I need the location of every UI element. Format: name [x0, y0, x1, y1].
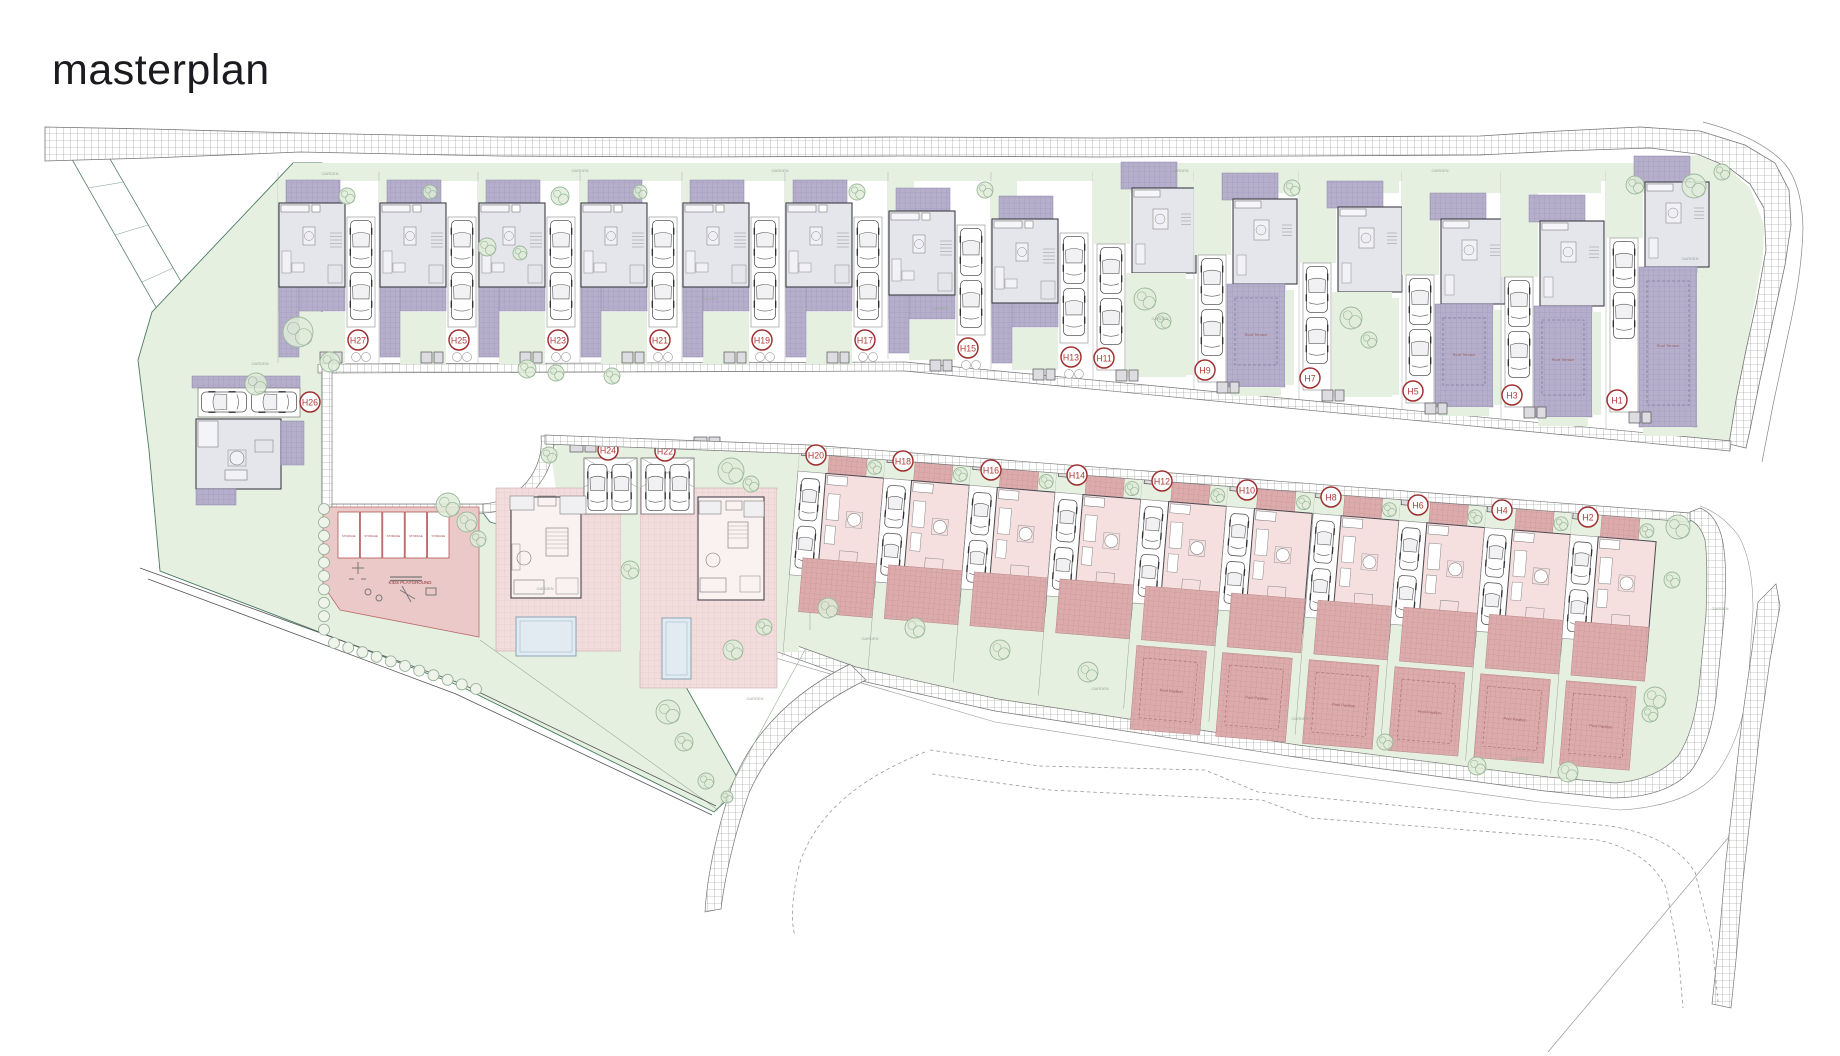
svg-text:GARDEN: GARDEN [1431, 168, 1448, 173]
svg-text:H15: H15 [960, 343, 976, 353]
svg-text:GARDEN: GARDEN [536, 586, 553, 591]
svg-text:H3: H3 [1506, 390, 1517, 400]
svg-text:GARDEN: GARDEN [861, 636, 878, 641]
svg-text:GARDEN: GARDEN [571, 168, 588, 173]
svg-text:GARDEN: GARDEN [1091, 686, 1108, 691]
svg-text:GARDEN: GARDEN [251, 361, 268, 366]
svg-text:H26: H26 [302, 397, 318, 407]
svg-text:H23: H23 [550, 335, 566, 345]
svg-text:H12: H12 [1154, 476, 1170, 486]
svg-text:H10: H10 [1239, 485, 1255, 495]
svg-text:H21: H21 [652, 335, 668, 345]
svg-text:Roof Terrace: Roof Terrace [1245, 332, 1269, 337]
svg-text:Roof Terrace: Roof Terrace [1453, 352, 1477, 357]
svg-text:H19: H19 [754, 335, 770, 345]
svg-text:H9: H9 [1199, 365, 1210, 375]
svg-text:STORAGE: STORAGE [409, 534, 423, 538]
svg-text:H16: H16 [983, 465, 999, 475]
svg-text:Roof Terrace: Roof Terrace [1552, 357, 1576, 362]
svg-text:H13: H13 [1063, 352, 1079, 362]
svg-text:H8: H8 [1325, 492, 1336, 502]
svg-text:H25: H25 [451, 335, 467, 345]
svg-text:GARDEN: GARDEN [1171, 168, 1188, 173]
svg-text:H4: H4 [1496, 505, 1507, 515]
svg-text:GARDEN: GARDEN [931, 306, 948, 311]
svg-text:Roof Terrace: Roof Terrace [1657, 343, 1681, 348]
svg-text:STORAGE: STORAGE [387, 534, 401, 538]
svg-text:STORAGE: STORAGE [431, 534, 445, 538]
svg-text:H17: H17 [857, 335, 873, 345]
svg-text:GARDEN: GARDEN [1681, 256, 1698, 261]
svg-text:H6: H6 [1412, 500, 1423, 510]
svg-text:GARDEN: GARDEN [321, 171, 338, 176]
svg-text:H20: H20 [808, 450, 824, 460]
svg-text:H2: H2 [1582, 512, 1593, 522]
svg-text:masterplan: masterplan [52, 46, 270, 94]
svg-text:H1: H1 [1611, 395, 1622, 405]
svg-text:H18: H18 [895, 456, 911, 466]
svg-text:H27: H27 [350, 335, 366, 345]
svg-text:H11: H11 [1096, 353, 1112, 363]
svg-text:H14: H14 [1069, 470, 1085, 480]
svg-text:STORAGE: STORAGE [342, 534, 356, 538]
svg-text:GARDEN: GARDEN [771, 168, 788, 173]
svg-text:GARDEN: GARDEN [1291, 716, 1308, 721]
svg-text:H7: H7 [1304, 373, 1315, 383]
svg-text:GARDEN: GARDEN [701, 296, 718, 301]
svg-text:GARDEN: GARDEN [746, 696, 763, 701]
svg-text:GARDEN: GARDEN [1511, 756, 1528, 761]
svg-text:STORAGE: STORAGE [364, 534, 378, 538]
svg-text:GARDEN: GARDEN [1151, 316, 1168, 321]
svg-text:GARDEN: GARDEN [1711, 606, 1728, 611]
svg-text:H5: H5 [1407, 386, 1418, 396]
